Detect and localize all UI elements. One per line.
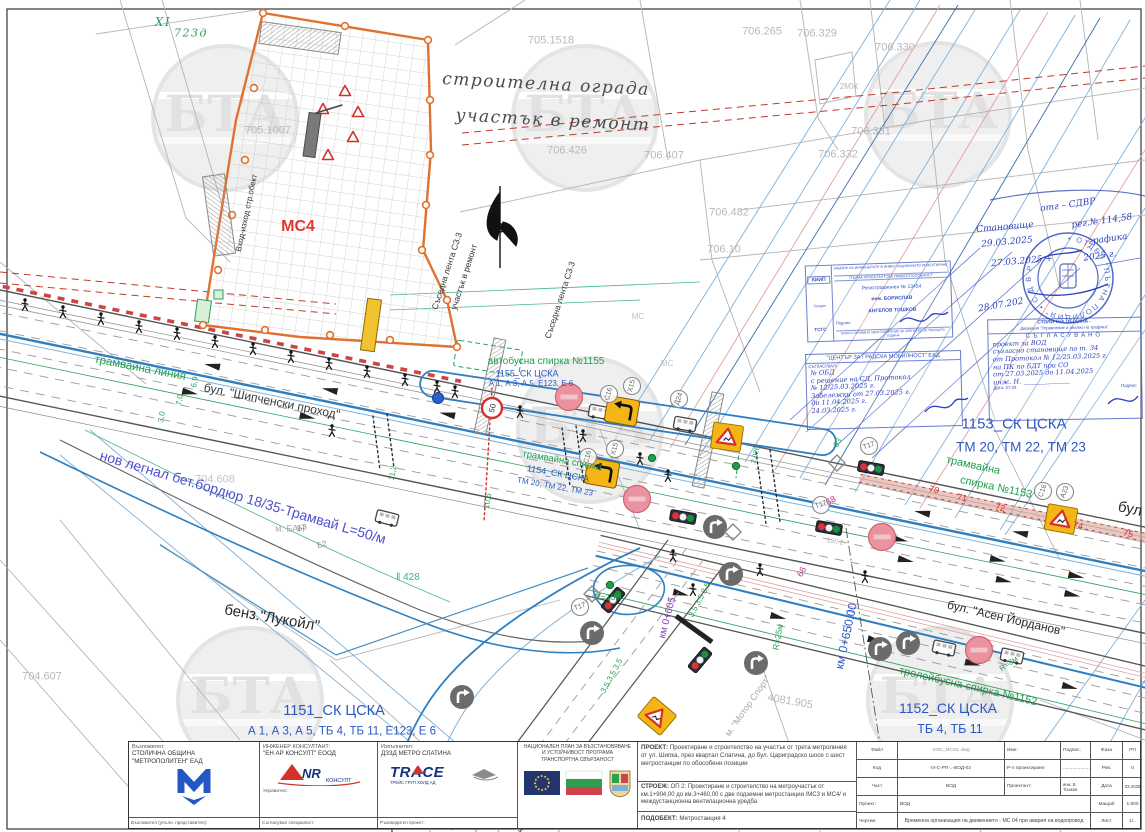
phase-label: Фаза bbox=[1091, 742, 1123, 760]
lead-designer-label: Р-л проектиране: bbox=[1005, 760, 1061, 778]
titleblock-contractor-cell: Изпълнител: ДЗЗД МЕТРО СЛАТИНА TRACE ТРЕ… bbox=[378, 742, 518, 828]
consultant-name: "ЕН АР КОНСУЛТ" ЕООД bbox=[263, 750, 374, 758]
flags-row bbox=[524, 769, 632, 799]
code-label: Код bbox=[857, 760, 898, 778]
designer-value: инж. Б. Тошков bbox=[1061, 778, 1091, 796]
designer-label: Проектант: bbox=[1005, 778, 1061, 796]
nr-logo-text: NR bbox=[302, 766, 321, 781]
title-block: Възложител: СТОЛИЧНА ОБЩИНА "МЕТРОПОЛИТЕ… bbox=[128, 741, 1141, 829]
contractor-footer: Ръководител проект: bbox=[378, 817, 517, 828]
drawing-label: Чертеж: bbox=[857, 813, 898, 830]
bulgaria-flag-icon bbox=[566, 771, 602, 795]
subobject-text: Метростанция 4 bbox=[679, 815, 725, 822]
code-value: III-С-РП-..-ВОД-02 bbox=[898, 760, 1005, 778]
file-label: Файл bbox=[857, 742, 898, 760]
nr-konsult-logo: NR КОНСУЛТ bbox=[276, 760, 362, 786]
titleblock-project-cell: ПРОЕКТ: Проектиране и строителство на уч… bbox=[638, 742, 857, 828]
date-label: Дата bbox=[1091, 778, 1123, 796]
owner-name2: "МЕТРОПОЛИТЕН" ЕАД bbox=[132, 758, 256, 766]
project-text: Проектиране и строителство на участък от… bbox=[641, 744, 847, 767]
owner-name: СТОЛИЧНА ОБЩИНА bbox=[132, 750, 256, 758]
signature-column-label: Подпис: bbox=[1061, 742, 1091, 760]
owner-footer: Възложител (упълн. представител): bbox=[129, 817, 259, 828]
part-label: Част bbox=[857, 778, 898, 796]
subobject-label: ПОДОБЕКТ: bbox=[641, 815, 678, 822]
revision-label: Рев. bbox=[1091, 760, 1123, 778]
sofia-coat-of-arms-icon bbox=[610, 771, 630, 797]
construction-text: ОП 2: Проектиране и строителство на метр… bbox=[641, 784, 846, 805]
project-row-label: Проект: bbox=[857, 796, 898, 813]
titleblock-program-cell: НАЦИОНАЛЕН ПЛАН ЗА ВЪЗСТАНОВЯВАНЕ И УСТО… bbox=[518, 742, 638, 828]
scale-value: 1:500 bbox=[1123, 796, 1142, 813]
drawing-title: Временна организация на движението - МС … bbox=[898, 813, 1091, 830]
phase-value: РП bbox=[1123, 742, 1142, 760]
name-column-label: Име: bbox=[1005, 742, 1061, 760]
construction-label: СТРОЕЖ: bbox=[641, 784, 669, 790]
scale-label: Мащаб bbox=[1091, 796, 1123, 813]
consultant-footer: Съгласувал специалист: bbox=[260, 817, 377, 828]
drawing-sheet: БТА bbox=[0, 0, 1145, 832]
contractor-name: ДЗЗД МЕТРО СЛАТИНА bbox=[381, 750, 514, 758]
partner-logo-mark bbox=[472, 769, 498, 780]
trace-logo: TRACE ТРЕЙС ГРУП ХОЛД АД bbox=[388, 761, 508, 787]
titleblock-consultant-cell: ИНЖЕНЕР КОНСУЛТАНТ: "ЕН АР КОНСУЛТ" ЕООД… bbox=[260, 742, 378, 828]
trace-logo-subtext: ТРЕЙС ГРУП ХОЛД АД bbox=[390, 780, 436, 785]
police-stamp-layer: • ОТДЕЛ "ПЪТНА ПОЛИЦИЯ" • С Д В Р bbox=[0, 0, 1145, 832]
eu-flag-icon bbox=[524, 771, 560, 795]
metropoliten-logo bbox=[177, 769, 211, 805]
consultant-manager-label: Управител: bbox=[263, 789, 374, 794]
project-label: ПРОЕКТ: bbox=[641, 744, 668, 751]
lead-designer-value: .......................... bbox=[1061, 760, 1091, 778]
date-value: 03.2025 bbox=[1123, 778, 1142, 796]
sheet-number-label: Лист bbox=[1091, 813, 1123, 830]
titleblock-info-table: Файл VOD_MC04..dwg Име: Подпис: Фаза РП … bbox=[857, 742, 1142, 828]
sheet-number-value: 1/.. bbox=[1123, 813, 1142, 830]
police-round-stamp: • ОТДЕЛ "ПЪТНА ПОЛИЦИЯ" • С Д В Р bbox=[1023, 233, 1113, 323]
signature-strokes bbox=[900, 250, 1138, 790]
program-line3: ТРАНСПОРТНА СВЪРЗАНОСТ bbox=[521, 757, 634, 763]
nr-logo-subtext: КОНСУЛТ bbox=[326, 778, 352, 784]
titleblock-owner-cell: Възложител: СТОЛИЧНА ОБЩИНА "МЕТРОПОЛИТЕ… bbox=[129, 742, 260, 828]
project-row-value: ВОД bbox=[898, 796, 1091, 813]
file-value: VOD_MC04..dwg bbox=[898, 742, 1005, 760]
revision-value: 0 bbox=[1123, 760, 1142, 778]
part-value: ВОД bbox=[898, 778, 1005, 796]
